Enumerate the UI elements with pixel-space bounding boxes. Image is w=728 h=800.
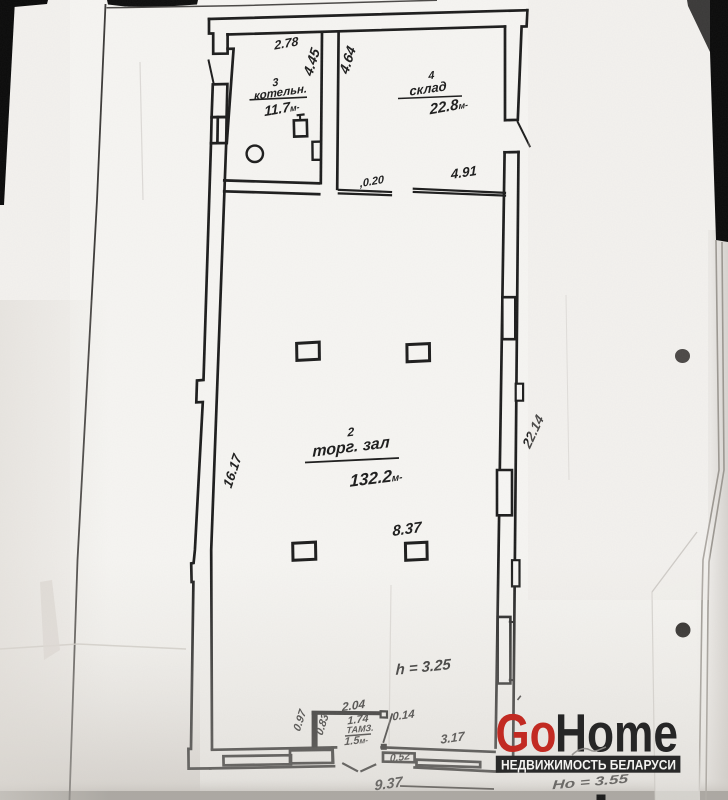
svg-text:Go: Go	[496, 704, 557, 763]
svg-text:НЕДВИЖИМОСТЬ БЕЛАРУСИ: НЕДВИЖИМОСТЬ БЕЛАРУСИ	[501, 757, 676, 772]
